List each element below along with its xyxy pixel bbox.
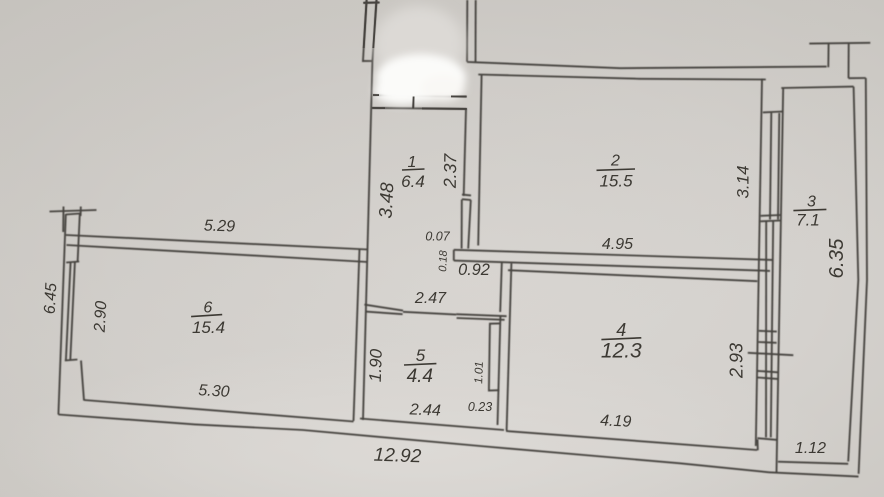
svg-text:5.29: 5.29 bbox=[204, 217, 236, 235]
svg-text:0.07: 0.07 bbox=[425, 230, 450, 244]
svg-text:1.01: 1.01 bbox=[473, 361, 486, 384]
svg-text:4.95: 4.95 bbox=[602, 236, 633, 253]
svg-text:0.18: 0.18 bbox=[437, 249, 450, 272]
svg-text:6.35: 6.35 bbox=[825, 238, 848, 278]
svg-text:6.4: 6.4 bbox=[401, 172, 425, 191]
svg-text:2.44: 2.44 bbox=[408, 401, 441, 419]
svg-text:4.4: 4.4 bbox=[407, 366, 433, 387]
svg-text:4: 4 bbox=[616, 320, 626, 340]
svg-text:1: 1 bbox=[408, 154, 417, 171]
svg-text:15.4: 15.4 bbox=[192, 318, 225, 337]
svg-text:3.48: 3.48 bbox=[375, 181, 398, 219]
svg-text:15.5: 15.5 bbox=[599, 172, 633, 191]
svg-text:1.90: 1.90 bbox=[366, 348, 386, 382]
svg-text:0.23: 0.23 bbox=[468, 400, 492, 414]
svg-text:2: 2 bbox=[610, 153, 620, 170]
svg-text:0.92: 0.92 bbox=[458, 261, 490, 279]
svg-text:2.93: 2.93 bbox=[727, 343, 747, 379]
svg-text:2.37: 2.37 bbox=[440, 153, 461, 190]
svg-text:1.12: 1.12 bbox=[795, 440, 826, 457]
svg-text:4.19: 4.19 bbox=[600, 412, 632, 430]
svg-text:12.3: 12.3 bbox=[601, 340, 642, 363]
svg-text:6.45: 6.45 bbox=[42, 282, 61, 314]
svg-text:2.90: 2.90 bbox=[92, 300, 111, 333]
svg-text:12.92: 12.92 bbox=[373, 445, 422, 468]
svg-text:2.47: 2.47 bbox=[414, 290, 447, 307]
svg-text:5.30: 5.30 bbox=[198, 382, 230, 401]
svg-text:3: 3 bbox=[807, 194, 816, 211]
svg-text:6: 6 bbox=[203, 300, 212, 317]
svg-text:3.14: 3.14 bbox=[734, 165, 753, 198]
svg-text:7.1: 7.1 bbox=[796, 211, 820, 230]
svg-text:5: 5 bbox=[416, 346, 426, 365]
